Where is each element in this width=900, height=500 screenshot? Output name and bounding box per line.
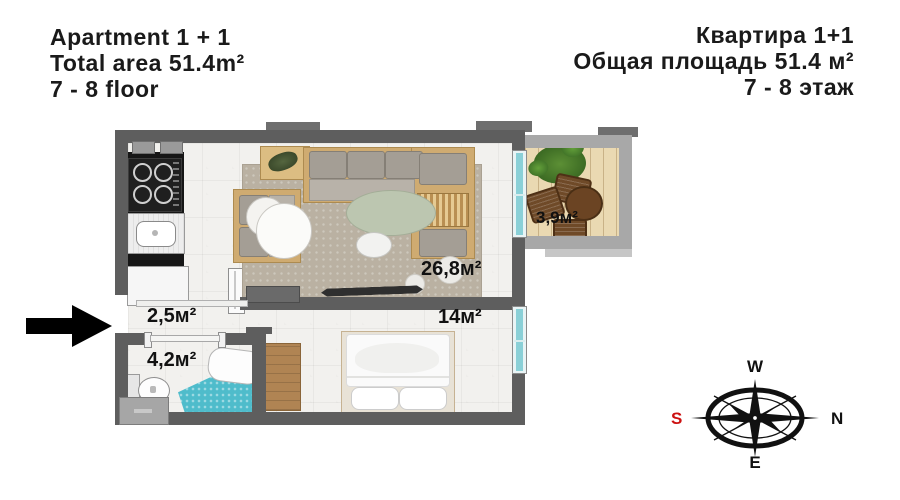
compass-south-label: S [671,409,682,428]
sofa-cushion [419,229,467,257]
floor-plan-page: Apartment 1 + 1 Total area 51.4m² 7 - 8 … [0,0,900,500]
compass-rose [691,379,819,457]
living-area-label: 26,8м² [421,258,481,281]
door-leaf-bathroom [150,335,220,342]
hallway-area-label: 2,5м² [147,305,196,328]
wall-bottom [115,412,525,425]
tv-console [246,286,300,303]
wall-bathroom-left-stub [115,333,147,345]
coffee-table-small [356,232,392,258]
entrance-arrow-shaft [26,318,74,334]
bathroom-area-label: 4,2м² [147,349,196,372]
kitchen-vent [132,141,155,154]
balcony-glass-door [512,150,527,238]
balcony-parapet-step [545,249,632,257]
compass-north-label: N [831,409,843,428]
balcony-wall-right [619,135,632,249]
wardrobe [265,343,301,411]
bedroom-window [512,306,527,374]
wall-left-upper [115,130,128,295]
balcony-area-label: 3,9м² [536,208,578,228]
sofa-cushion [309,151,347,179]
coffee-table [256,203,312,259]
sofa-cushion [385,151,423,179]
bed-pillow [399,387,447,410]
wall-right-seg [512,130,525,150]
compass-rose-icon: W N E S [668,352,848,474]
bedroom-area-label: 14м² [438,306,482,329]
wall-right-seg [512,236,525,306]
compass-west-label: W [747,357,764,376]
wall-bathroom-right-stub [220,333,266,345]
kitchen-sink [127,213,185,254]
coffee-table-oval [346,190,436,236]
sofa-cushion [347,151,385,179]
washing-machine [119,397,169,425]
kitchen-stove [128,158,182,212]
bed-pillow [351,387,399,410]
wall-right-seg [512,372,525,412]
balcony-wall-top [525,135,632,148]
window-mullion [514,194,525,196]
window-mullion [514,340,525,342]
entrance-arrow-head [72,305,112,347]
entrance-arrow-icon [26,305,112,347]
sofa-cushion [419,153,467,185]
balcony-wall-bottom [525,236,632,249]
bed-duvet [346,334,450,387]
compass-east-label: E [749,453,760,472]
kitchen-vent [160,141,183,154]
